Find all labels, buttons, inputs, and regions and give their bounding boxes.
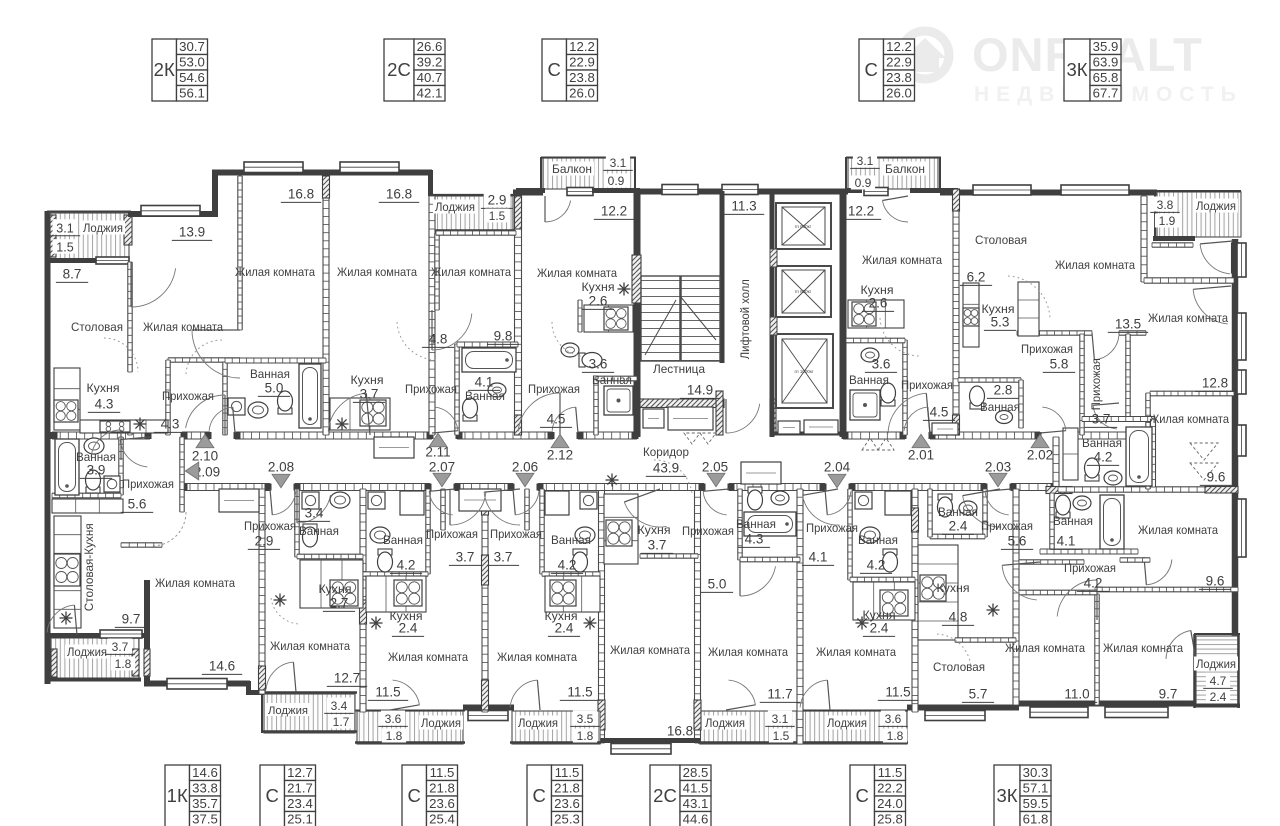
- svg-text:25.8: 25.8: [877, 811, 903, 826]
- svg-text:3.6: 3.6: [885, 712, 902, 726]
- svg-text:44.6: 44.6: [683, 811, 709, 826]
- svg-text:4.2: 4.2: [1094, 450, 1113, 465]
- svg-text:26.6: 26.6: [417, 39, 443, 54]
- svg-text:11.3: 11.3: [731, 199, 756, 214]
- svg-text:4.2: 4.2: [1084, 576, 1103, 591]
- svg-text:11.5: 11.5: [375, 685, 400, 700]
- svg-text:23.4: 23.4: [287, 796, 313, 811]
- svg-text:2.01: 2.01: [908, 448, 934, 463]
- svg-text:12.2: 12.2: [886, 39, 912, 54]
- svg-text:Кухня: Кухня: [638, 523, 671, 537]
- svg-text:2.4: 2.4: [1210, 690, 1227, 704]
- svg-text:3.1: 3.1: [772, 712, 789, 726]
- svg-text:1.5: 1.5: [489, 209, 506, 223]
- svg-text:Лоджия: Лоджия: [1196, 199, 1236, 213]
- svg-text:Жилая комната: Жилая комната: [388, 650, 468, 664]
- svg-text:11.5: 11.5: [567, 685, 592, 700]
- svg-text:3.4: 3.4: [305, 506, 324, 521]
- svg-text:Жилая комната: Жилая комната: [270, 639, 350, 653]
- svg-text:40.7: 40.7: [417, 70, 443, 85]
- svg-text:54.6: 54.6: [179, 70, 205, 85]
- svg-text:Жилая комната: Жилая комната: [155, 576, 235, 590]
- svg-text:2С: 2С: [653, 785, 677, 806]
- svg-text:2К: 2К: [154, 59, 175, 80]
- svg-text:12.7: 12.7: [334, 671, 360, 686]
- svg-text:Кухня: Кухня: [351, 373, 384, 387]
- svg-text:2.03: 2.03: [985, 460, 1011, 475]
- svg-text:Прихожая: Прихожая: [405, 382, 457, 396]
- svg-text:Жилая комната: Жилая комната: [1005, 641, 1085, 655]
- svg-text:Кухня: Кухня: [582, 280, 615, 294]
- svg-text:Лоджия: Лоджия: [421, 716, 461, 730]
- svg-text:2.4: 2.4: [870, 621, 889, 636]
- svg-text:Кухня: Кухня: [87, 381, 120, 395]
- svg-text:2.9: 2.9: [255, 534, 274, 549]
- svg-text:22.9: 22.9: [886, 54, 912, 69]
- svg-text:С: С: [856, 785, 869, 806]
- svg-text:3.7: 3.7: [456, 550, 475, 565]
- svg-text:4.3: 4.3: [161, 417, 180, 432]
- svg-text:3.1: 3.1: [56, 221, 73, 235]
- svg-text:30.7: 30.7: [179, 39, 205, 54]
- svg-text:Лоджия: Лоджия: [268, 705, 308, 717]
- svg-text:Лоджия: Лоджия: [705, 716, 745, 730]
- svg-text:Столовая: Столовая: [933, 660, 985, 674]
- svg-text:2.4: 2.4: [949, 519, 968, 534]
- svg-text:Прихожая: Прихожая: [682, 524, 734, 538]
- svg-text:4.3: 4.3: [745, 532, 764, 547]
- svg-text:1.8: 1.8: [887, 729, 904, 743]
- svg-text:13.9: 13.9: [179, 225, 205, 240]
- svg-text:3.8: 3.8: [1157, 198, 1174, 212]
- svg-text:13.5: 13.5: [1115, 317, 1141, 332]
- svg-text:4.2: 4.2: [397, 558, 416, 573]
- svg-text:3К: 3К: [1066, 59, 1087, 80]
- svg-text:Жилая комната: Жилая комната: [1103, 641, 1183, 655]
- svg-text:4.2: 4.2: [558, 558, 577, 573]
- svg-text:65.8: 65.8: [1093, 70, 1119, 85]
- svg-text:2.04: 2.04: [824, 460, 851, 475]
- svg-text:2.06: 2.06: [512, 460, 538, 475]
- svg-text:2.08: 2.08: [268, 460, 294, 475]
- svg-text:Ванная: Ванная: [551, 533, 591, 547]
- svg-text:3.1: 3.1: [610, 156, 627, 170]
- svg-text:Прихожая: Прихожая: [528, 382, 580, 396]
- svg-text:Ванная: Ванная: [980, 400, 1020, 414]
- svg-text:2.6: 2.6: [589, 294, 608, 309]
- svg-text:С: С: [865, 59, 878, 80]
- svg-text:3.7: 3.7: [648, 538, 667, 553]
- svg-text:4.1: 4.1: [475, 375, 494, 390]
- svg-text:Лоджия: Лоджия: [827, 716, 867, 730]
- svg-text:Прихожая: Прихожая: [244, 519, 296, 533]
- svg-text:1.5: 1.5: [773, 729, 790, 743]
- svg-text:63.9: 63.9: [1093, 54, 1119, 69]
- svg-text:5.3: 5.3: [991, 315, 1010, 330]
- svg-text:21.8: 21.8: [429, 780, 455, 795]
- svg-text:9.8: 9.8: [494, 329, 513, 344]
- svg-text:4.8: 4.8: [949, 610, 968, 625]
- svg-text:2.8: 2.8: [994, 383, 1013, 398]
- svg-text:3.6: 3.6: [589, 357, 608, 372]
- svg-text:35.9: 35.9: [1093, 39, 1119, 54]
- svg-text:57.1: 57.1: [1023, 780, 1049, 795]
- svg-text:Ванная: Ванная: [465, 389, 505, 403]
- svg-text:5.0: 5.0: [265, 381, 284, 396]
- svg-text:5.6: 5.6: [1008, 534, 1027, 549]
- svg-text:42.1: 42.1: [417, 85, 443, 100]
- svg-text:67.7: 67.7: [1093, 85, 1119, 100]
- svg-text:4.3: 4.3: [95, 397, 114, 412]
- svg-text:2.4: 2.4: [399, 621, 418, 636]
- svg-text:Жилая комната: Жилая комната: [1055, 258, 1135, 272]
- svg-text:12.2: 12.2: [848, 204, 874, 219]
- svg-text:Жилая комната: Жилая комната: [537, 266, 617, 280]
- svg-text:5.8: 5.8: [1050, 357, 1069, 372]
- svg-text:3К: 3К: [996, 785, 1017, 806]
- svg-text:12.2: 12.2: [601, 204, 627, 219]
- svg-text:Жилая комната: Жилая комната: [497, 650, 577, 664]
- svg-text:2.9: 2.9: [488, 193, 507, 208]
- svg-text:23.8: 23.8: [569, 70, 595, 85]
- svg-text:гп 1000кг: гп 1000кг: [795, 369, 814, 374]
- svg-text:4.1: 4.1: [809, 550, 828, 565]
- svg-text:Жилая комната: Жилая комната: [862, 253, 942, 267]
- svg-text:2.12: 2.12: [547, 448, 573, 463]
- svg-text:11.0: 11.0: [1064, 687, 1089, 702]
- svg-text:37.5: 37.5: [192, 811, 218, 826]
- svg-text:Столовая-Кухня: Столовая-Кухня: [82, 523, 96, 611]
- svg-text:Прихожая: Прихожая: [806, 521, 858, 535]
- svg-text:2.02: 2.02: [1027, 448, 1053, 463]
- svg-text:5.7: 5.7: [969, 687, 988, 702]
- svg-text:Ванная: Ванная: [849, 373, 889, 387]
- svg-text:Прихожая: Прихожая: [1089, 358, 1103, 410]
- svg-text:9.6: 9.6: [1206, 574, 1225, 589]
- svg-text:4.5: 4.5: [930, 405, 949, 420]
- svg-text:23.6: 23.6: [554, 796, 580, 811]
- svg-text:Ванная: Ванная: [1053, 514, 1093, 528]
- svg-text:Лоджия: Лоджия: [1196, 657, 1236, 671]
- svg-text:С: С: [408, 785, 421, 806]
- svg-text:0.9: 0.9: [855, 176, 872, 190]
- svg-text:24.0: 24.0: [877, 796, 903, 811]
- svg-text:3.5: 3.5: [577, 712, 594, 726]
- svg-text:2.4: 2.4: [555, 621, 574, 636]
- svg-text:22.9: 22.9: [569, 54, 595, 69]
- svg-text:3.9: 3.9: [87, 463, 106, 478]
- svg-text:11.5: 11.5: [885, 685, 910, 700]
- svg-text:1.8: 1.8: [577, 729, 594, 743]
- svg-text:Столовая: Столовая: [975, 233, 1027, 247]
- svg-text:Лифтовой холл: Лифтовой холл: [738, 279, 752, 359]
- svg-text:11.5: 11.5: [430, 765, 455, 780]
- svg-text:53.0: 53.0: [179, 54, 205, 69]
- svg-text:16.8: 16.8: [667, 724, 693, 739]
- svg-text:4.1: 4.1: [1057, 534, 1076, 549]
- svg-text:43.1: 43.1: [683, 796, 709, 811]
- svg-text:0.9: 0.9: [608, 174, 625, 188]
- svg-text:Балкон: Балкон: [552, 162, 592, 176]
- svg-text:14.6: 14.6: [209, 659, 235, 674]
- svg-text:2.05: 2.05: [702, 460, 728, 475]
- svg-text:Лоджия: Лоджия: [83, 221, 123, 235]
- svg-text:Жилая комната: Жилая комната: [816, 645, 896, 659]
- svg-text:11.5: 11.5: [878, 765, 903, 780]
- svg-text:2.6: 2.6: [869, 296, 888, 311]
- svg-text:41.5: 41.5: [683, 780, 709, 795]
- svg-text:26.0: 26.0: [886, 85, 912, 100]
- svg-text:5.0: 5.0: [708, 577, 727, 592]
- svg-text:25.1: 25.1: [287, 811, 313, 826]
- svg-text:Жилая комната: Жилая комната: [1138, 523, 1218, 537]
- svg-text:3.7: 3.7: [360, 387, 379, 402]
- svg-text:Прихожая: Прихожая: [426, 527, 478, 541]
- svg-text:2.10: 2.10: [192, 449, 218, 464]
- svg-text:Жилая комната: Жилая комната: [610, 643, 690, 657]
- svg-text:14.9: 14.9: [687, 383, 713, 398]
- svg-text:Прихожая: Прихожая: [122, 477, 174, 491]
- svg-text:С: С: [533, 785, 546, 806]
- svg-text:Лестница: Лестница: [653, 362, 705, 376]
- svg-text:3.7: 3.7: [112, 640, 129, 654]
- svg-text:3.6: 3.6: [385, 712, 402, 726]
- svg-text:Прихожая: Прихожая: [981, 519, 1033, 533]
- svg-text:39.2: 39.2: [417, 54, 443, 69]
- svg-text:16.8: 16.8: [386, 187, 412, 202]
- svg-text:Ванная: Ванная: [250, 367, 290, 381]
- svg-text:25.3: 25.3: [554, 811, 580, 826]
- svg-text:5.6: 5.6: [128, 497, 147, 512]
- svg-text:61.8: 61.8: [1023, 811, 1049, 826]
- svg-text:Жилая комната: Жилая комната: [337, 265, 417, 279]
- svg-text:Жилая комната: Жилая комната: [235, 265, 315, 279]
- svg-text:30.3: 30.3: [1023, 765, 1049, 780]
- svg-text:С: С: [266, 785, 279, 806]
- svg-text:16.8: 16.8: [288, 187, 314, 202]
- svg-text:28.5: 28.5: [683, 765, 709, 780]
- svg-text:3.4: 3.4: [331, 699, 348, 713]
- svg-text:Жилая комната: Жилая комната: [431, 265, 511, 279]
- svg-text:43.9: 43.9: [653, 461, 679, 476]
- svg-text:33.8: 33.8: [192, 780, 218, 795]
- svg-text:4.7: 4.7: [1210, 674, 1227, 688]
- svg-text:1.8: 1.8: [115, 657, 132, 671]
- svg-text:1.5: 1.5: [56, 240, 73, 254]
- svg-text:Лоджия: Лоджия: [435, 200, 475, 214]
- svg-text:35.7: 35.7: [192, 796, 218, 811]
- svg-text:11.5: 11.5: [555, 765, 580, 780]
- svg-text:Лоджия: Лоджия: [67, 645, 107, 659]
- svg-text:56.1: 56.1: [179, 85, 205, 100]
- svg-text:Ванная: Ванная: [736, 517, 776, 531]
- svg-text:гп 630кг: гп 630кг: [795, 289, 812, 294]
- svg-text:12.2: 12.2: [569, 39, 595, 54]
- svg-text:9.6: 9.6: [1207, 470, 1226, 485]
- svg-text:23.8: 23.8: [886, 70, 912, 85]
- svg-text:Жилая комната: Жилая комната: [708, 645, 788, 659]
- svg-text:Ванная: Ванная: [938, 505, 978, 519]
- svg-text:9.7: 9.7: [1159, 687, 1178, 702]
- svg-text:1.8: 1.8: [386, 729, 403, 743]
- svg-text:6.2: 6.2: [967, 270, 986, 285]
- svg-text:3.7: 3.7: [494, 550, 513, 565]
- svg-text:9.7: 9.7: [122, 612, 141, 627]
- svg-text:Балкон: Балкон: [885, 162, 925, 176]
- svg-text:2С: 2С: [387, 59, 411, 80]
- svg-text:23.6: 23.6: [429, 796, 455, 811]
- svg-text:Прихожая: Прихожая: [1021, 342, 1073, 356]
- svg-text:12.8: 12.8: [1202, 376, 1228, 391]
- svg-text:Столовая: Столовая: [71, 320, 123, 334]
- svg-text:Кухня: Кухня: [319, 582, 352, 596]
- svg-text:21.7: 21.7: [287, 780, 313, 795]
- svg-text:Ванная: Ванная: [383, 533, 423, 547]
- svg-text:4.2: 4.2: [867, 558, 886, 573]
- svg-text:1.9: 1.9: [1159, 214, 1176, 228]
- svg-text:Прихожая: Прихожая: [162, 389, 214, 403]
- svg-text:4.5: 4.5: [547, 412, 566, 427]
- svg-text:59.5: 59.5: [1023, 796, 1049, 811]
- svg-text:Коридор: Коридор: [643, 445, 689, 459]
- svg-text:25.4: 25.4: [429, 811, 455, 826]
- svg-text:С: С: [548, 59, 561, 80]
- svg-text:Жилая комната: Жилая комната: [1149, 412, 1229, 426]
- svg-text:2.7: 2.7: [330, 596, 349, 611]
- svg-text:гп 630кг: гп 630кг: [795, 224, 812, 229]
- svg-text:Ванная: Ванная: [299, 524, 339, 538]
- svg-text:2.07: 2.07: [429, 460, 455, 475]
- svg-text:26.0: 26.0: [569, 85, 595, 100]
- svg-text:Ванная: Ванная: [858, 533, 898, 547]
- svg-text:3.7: 3.7: [1092, 412, 1111, 427]
- svg-text:21.8: 21.8: [554, 780, 580, 795]
- svg-text:1.7: 1.7: [333, 715, 350, 729]
- svg-text:Жилая комната: Жилая комната: [143, 320, 223, 334]
- svg-text:4.8: 4.8: [429, 332, 448, 347]
- svg-text:Ванная: Ванная: [592, 373, 632, 387]
- svg-text:Прихожая: Прихожая: [901, 378, 953, 392]
- svg-text:8.7: 8.7: [63, 267, 82, 282]
- svg-text:Ванная: Ванная: [1082, 436, 1122, 450]
- svg-text:Жилая комната: Жилая комната: [1148, 311, 1228, 325]
- svg-text:22.2: 22.2: [877, 780, 903, 795]
- svg-text:12.7: 12.7: [287, 765, 313, 780]
- svg-text:3.6: 3.6: [872, 357, 891, 372]
- svg-text:Прихожая: Прихожая: [1064, 561, 1116, 575]
- svg-text:14.6: 14.6: [192, 765, 218, 780]
- svg-text:Прихожая: Прихожая: [490, 527, 542, 541]
- svg-text:3.1: 3.1: [857, 154, 874, 168]
- svg-text:11.7: 11.7: [767, 687, 792, 702]
- svg-text:1К: 1К: [167, 785, 188, 806]
- svg-text:Лоджия: Лоджия: [518, 716, 558, 730]
- svg-text:Кухня: Кухня: [937, 581, 970, 595]
